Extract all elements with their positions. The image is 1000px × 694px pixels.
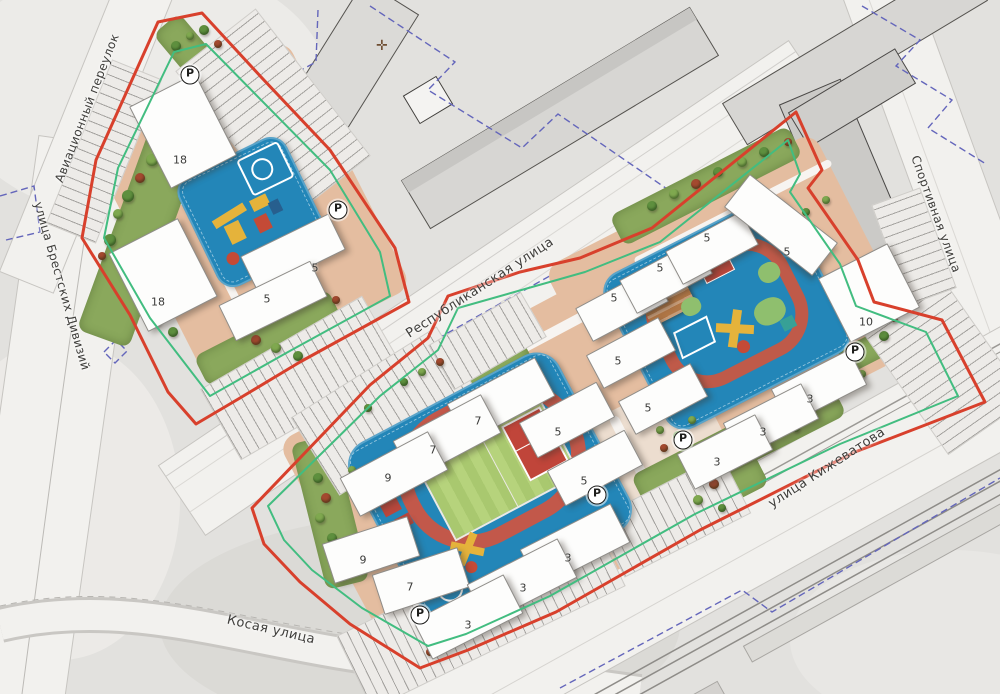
building-number-label: 9 xyxy=(385,472,392,485)
site-plan-map: ✛ xyxy=(0,0,1000,694)
building-number-label: 3 xyxy=(807,393,814,406)
street-name-label: Авиационный переулок xyxy=(52,32,122,185)
building-number-label: 5 xyxy=(581,475,588,488)
building-number-label: 7 xyxy=(430,444,437,457)
building-number-label: 3 xyxy=(565,552,572,565)
building-number-label: 5 xyxy=(615,355,622,368)
building-number-label: 5 xyxy=(784,246,791,259)
building-number-label: 3 xyxy=(714,456,721,469)
parking-icon: P xyxy=(674,431,693,450)
street-name-label: Спортивная улица xyxy=(908,153,963,274)
building-number-label: 5 xyxy=(611,292,618,305)
building-number-label: 3 xyxy=(760,426,767,439)
building-number-label: 5 xyxy=(312,262,319,275)
building-number-label: 9 xyxy=(360,554,367,567)
building-number-label: 18 xyxy=(173,154,187,167)
street-name-label: улица Кижеватова xyxy=(766,425,888,512)
building-number-label: 5 xyxy=(704,232,711,245)
building-number-label: 3 xyxy=(520,582,527,595)
building-number-label: 7 xyxy=(407,581,414,594)
labels-layer: 181855779975533355555510333Авиационный п… xyxy=(0,0,1000,694)
building-number-label: 10 xyxy=(859,316,873,329)
parking-icon: P xyxy=(181,66,200,85)
building-number-label: 3 xyxy=(465,619,472,632)
building-number-label: 5 xyxy=(264,293,271,306)
building-number-label: 7 xyxy=(475,415,482,428)
parking-icon: P xyxy=(588,486,607,505)
parking-icon: P xyxy=(846,343,865,362)
parking-icon: P xyxy=(411,606,430,625)
parking-icon: P xyxy=(329,201,348,220)
street-name-label: улица Брестских Дивизий xyxy=(31,200,93,372)
building-number-label: 5 xyxy=(645,402,652,415)
street-name-label: Республиканская улица xyxy=(403,235,556,342)
street-name-label: Косая улица xyxy=(226,613,317,648)
building-number-label: 5 xyxy=(555,426,562,439)
building-number-label: 5 xyxy=(657,262,664,275)
building-number-label: 18 xyxy=(151,296,165,309)
